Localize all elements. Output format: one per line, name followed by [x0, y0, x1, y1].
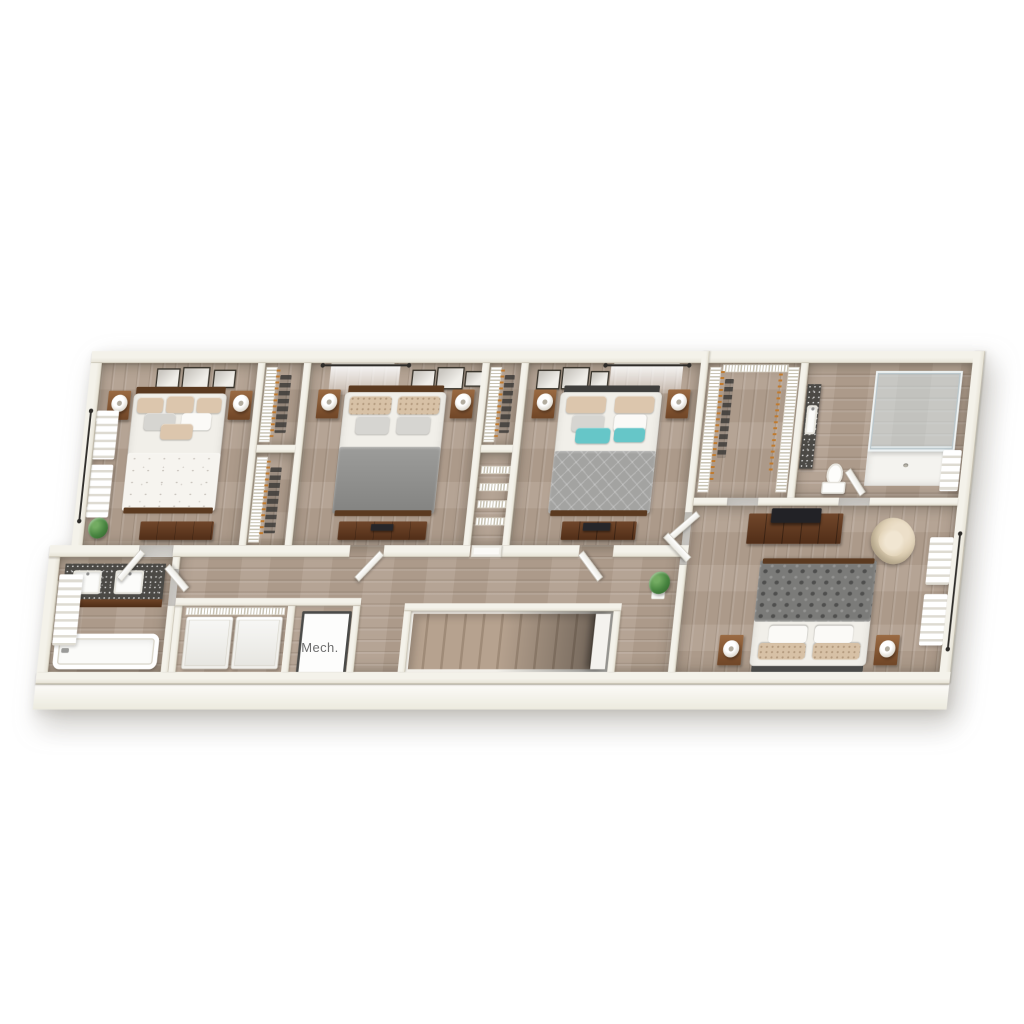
floorplan — [28, 347, 998, 717]
pillow — [397, 396, 441, 414]
footboard — [762, 558, 874, 563]
wall — [758, 498, 839, 506]
linen-shelf — [479, 483, 509, 491]
toilet-tank — [821, 482, 846, 494]
washer — [181, 616, 234, 669]
footboard — [550, 510, 648, 516]
pillow — [768, 626, 808, 643]
linen-shelf — [481, 466, 511, 474]
teal-pillow — [613, 428, 646, 443]
pillow — [396, 416, 431, 434]
bed — [330, 385, 449, 516]
wall — [869, 498, 958, 506]
curtain-rod — [606, 364, 688, 366]
wall — [49, 545, 140, 557]
wall — [35, 672, 950, 684]
tv — [771, 508, 822, 523]
staircase-opening — [405, 611, 614, 672]
gray-blanket — [332, 447, 440, 514]
pillow — [757, 643, 806, 660]
accent-pillow — [160, 424, 194, 440]
mech-room-label: Mech. — [286, 640, 354, 655]
pillow — [136, 397, 164, 413]
dresser-decor — [583, 523, 611, 531]
dryer — [230, 616, 283, 669]
pillow — [565, 396, 607, 413]
stair-shadow — [405, 611, 614, 672]
tub-faucet — [61, 648, 69, 652]
wall — [175, 598, 361, 606]
picture-frame — [589, 371, 609, 387]
wall — [481, 445, 513, 453]
glass-shower — [868, 371, 963, 452]
linen-shelf — [475, 517, 505, 525]
pillow — [348, 396, 392, 414]
wall — [91, 351, 985, 363]
wall — [383, 545, 470, 557]
footboard — [123, 508, 213, 514]
picture-frame — [155, 368, 181, 388]
dresser — [139, 521, 214, 539]
floorplan-scene: Mech. — [0, 0, 1024, 1024]
pillow — [165, 396, 194, 413]
dresser-decor — [371, 524, 394, 531]
picture-frame — [536, 370, 562, 390]
south-wall-face — [33, 684, 950, 710]
teal-pillow — [575, 428, 611, 444]
bed — [746, 558, 880, 672]
footboard — [334, 510, 432, 516]
wall — [501, 545, 580, 557]
wire-shelf — [185, 607, 285, 615]
wall — [256, 445, 295, 453]
bed — [119, 387, 229, 514]
linen-door — [471, 545, 503, 557]
stair-knee-wall — [404, 603, 622, 611]
pillow — [614, 396, 656, 413]
pillow — [355, 416, 390, 434]
bed — [546, 385, 665, 516]
pillow — [196, 397, 222, 413]
pillow — [814, 626, 854, 643]
picture-frame — [212, 370, 236, 388]
wire-shelving — [722, 364, 789, 372]
patterned-blanket — [754, 561, 877, 622]
pillow — [812, 643, 861, 660]
wall — [693, 498, 727, 506]
quilted-comforter — [548, 451, 656, 514]
curtain-rod — [324, 364, 409, 366]
floral-blanket — [122, 453, 221, 511]
linen-shelf — [477, 500, 507, 508]
wall — [172, 545, 350, 557]
